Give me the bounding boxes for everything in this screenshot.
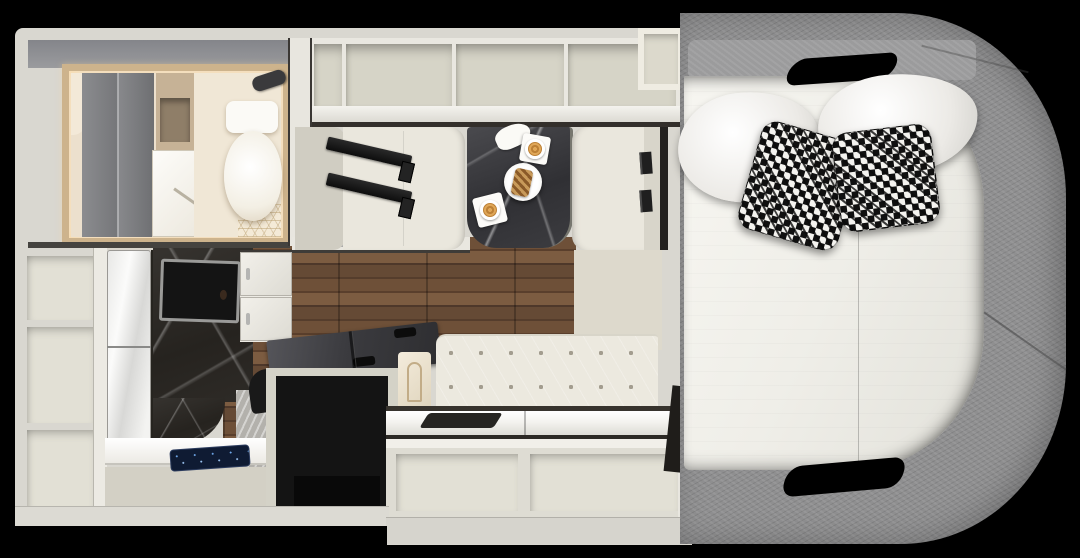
storage-cubby	[530, 454, 678, 511]
toilet	[224, 131, 282, 221]
background-mask	[15, 526, 387, 546]
overhead-cabinet-bay	[346, 44, 452, 106]
door-handle	[246, 268, 250, 280]
seat-belt-buckle	[639, 152, 653, 175]
shelf-cubby	[27, 327, 93, 423]
bench-backrest	[644, 127, 660, 250]
storage-cubby	[396, 454, 518, 511]
counter-front	[386, 439, 692, 448]
toilet-tank	[226, 101, 278, 133]
overhead-cabinet-bay	[456, 44, 564, 106]
cabinet-ledge	[310, 106, 680, 123]
bottom-wall	[15, 506, 389, 528]
refrigerator-door-seam	[107, 346, 151, 348]
sconce-arch-icon	[407, 362, 422, 402]
appliance-front	[266, 368, 398, 518]
sofa-bench	[436, 334, 658, 412]
divider-wall	[660, 127, 668, 250]
camper-floorplan	[0, 0, 1080, 558]
coffee-cup	[480, 200, 500, 220]
bottom-wall	[386, 517, 692, 544]
cover-hinge	[394, 327, 417, 338]
wardrobe-doors	[82, 73, 154, 237]
shelf-cubby	[27, 256, 93, 320]
pillow-houndstooth	[830, 122, 941, 233]
shower-window	[159, 259, 241, 324]
shelf-cubby	[27, 430, 93, 508]
door-handle	[246, 313, 250, 325]
cover-hinge	[353, 356, 376, 367]
overhead-cabinet-bay	[314, 44, 342, 106]
seat-belt-buckle	[639, 190, 653, 213]
dinette-bench-rear	[572, 127, 644, 250]
bath-shelf-opening	[160, 98, 190, 142]
nightstand-opening	[644, 34, 678, 84]
coffee-cup	[525, 139, 545, 159]
refrigerator	[107, 250, 151, 465]
sink-tray	[419, 413, 502, 428]
